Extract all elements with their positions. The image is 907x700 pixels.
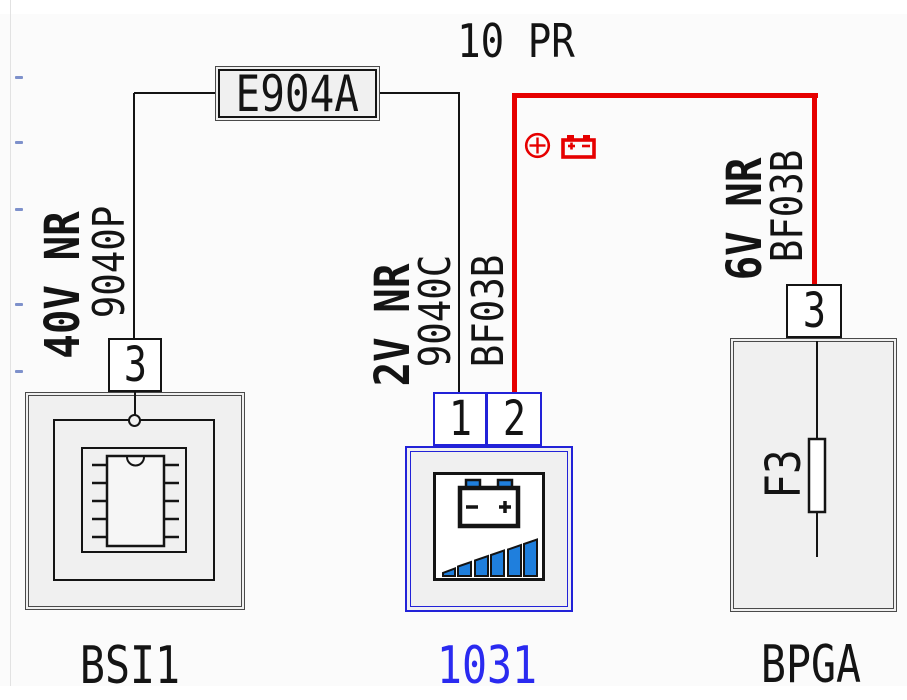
pin-number: 1 [448, 391, 471, 447]
margin-tick [15, 141, 23, 144]
wire-code-label: 9040C [414, 255, 458, 368]
pin-box-1031-2: 2 [486, 392, 542, 446]
wire-black-horizontal-right [380, 92, 459, 94]
pin-number: 3 [123, 337, 146, 393]
pin-box-bpga: 3 [786, 284, 842, 338]
margin-tick [15, 76, 23, 79]
splice-label: E904A [236, 65, 359, 123]
wire-red-horizontal [512, 93, 818, 98]
page-margin-top [0, 0, 907, 14]
pin-box-bsi1: 3 [108, 338, 162, 392]
component-label-1031: 1031 [437, 640, 537, 692]
pin-number: 3 [802, 283, 825, 339]
connection-node [128, 414, 141, 427]
wire-color-label: 40V NR [39, 211, 87, 358]
wire-black-horizontal-left [134, 92, 215, 94]
component-1031 [405, 446, 573, 612]
bsi1-inner-box-2 [81, 447, 187, 553]
margin-tick [15, 208, 23, 211]
wire-harness-label: BF03B [467, 255, 511, 368]
splice-box: E904A [215, 66, 380, 121]
microcontroller-icon [83, 449, 185, 551]
wiring-diagram-canvas: 10 PR E904A 40V NR 9040P 2V NR 9040C BF0… [0, 0, 907, 700]
battery-icon [560, 131, 598, 161]
margin-tick [15, 370, 23, 373]
battery-charge-icon [436, 475, 542, 578]
page-edge-line [10, 0, 11, 686]
wire-harness-label: BF03B [766, 150, 810, 263]
diagram-title: 10 PR [457, 18, 575, 64]
pin-box-1031-1: 1 [433, 392, 487, 446]
bsi1-inner-box [53, 419, 215, 581]
splice-box-frame: E904A [218, 69, 377, 118]
margin-tick [15, 303, 23, 306]
plus-circle-icon [524, 132, 551, 159]
component-label-bsi1: BSI1 [80, 640, 180, 692]
wire-code-label: 9040P [88, 206, 132, 319]
fuse-label: F3 [760, 449, 808, 498]
icon-box [433, 472, 545, 581]
component-label-bpga: BPGA [761, 639, 861, 691]
pin-number: 2 [502, 391, 525, 447]
